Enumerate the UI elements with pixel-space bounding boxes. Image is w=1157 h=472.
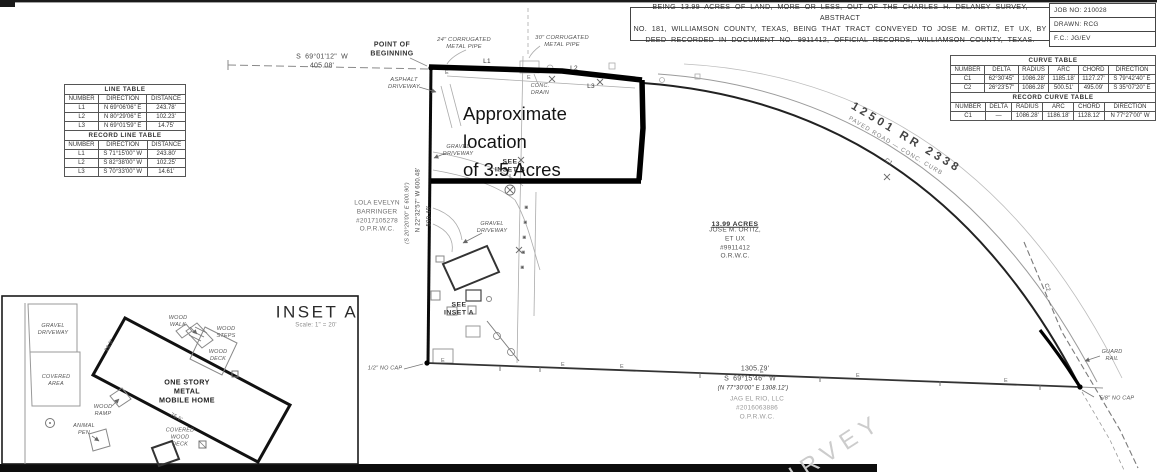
line-l2-label: L2 — [570, 65, 578, 73]
table-cell: N 77°27'00" W — [1105, 112, 1156, 121]
record-curve-table: RECORD CURVE TABLE NUMBERDELTARADIUSARCC… — [950, 92, 1156, 121]
table-header-cell: CHORD — [1079, 66, 1109, 75]
gravel-driveway-label-2: GRAVEL DRIVEWAY — [477, 221, 507, 235]
table-row: C1—1086.28'1186.18'1128.12'N 77°27'00" W — [951, 112, 1156, 121]
table-row: C162°30'45"1086.28'1185.18'1127.27'S 79°… — [951, 75, 1156, 84]
table-header-cell: CHORD — [1074, 103, 1105, 112]
table-header-cell: DISTANCE — [147, 95, 186, 104]
table-header-cell: NUMBER — [951, 66, 985, 75]
guard-rail-label: GUARD RAIL — [1102, 349, 1123, 363]
table-header-cell: DIRECTION — [1108, 66, 1155, 75]
svg-text:E: E — [620, 364, 624, 370]
point-of-beginning-label: POINT OF BEGINNING — [370, 41, 413, 59]
svg-text:E: E — [561, 362, 565, 368]
record-line-table: RECORD LINE TABLE NUMBERDIRECTIONDISTANC… — [64, 130, 186, 177]
pipe-30-label: 30" CORRUGATED METAL PIPE — [535, 35, 589, 49]
curve-tables: CURVE TABLE NUMBERDELTARADIUSARCCHORDDIR… — [950, 55, 1156, 121]
table-cell: 1086.28' — [1012, 112, 1043, 121]
table-header-cell: NUMBER — [65, 141, 99, 150]
table-cell: 1128.12' — [1074, 112, 1105, 121]
west-partial-distance: 590.48' — [426, 206, 434, 227]
table-cell: 102.23' — [147, 113, 186, 122]
record-line-table-title: RECORD LINE TABLE — [65, 131, 186, 141]
line-l1-label: L1 — [483, 58, 491, 66]
table-cell: 243.80' — [147, 150, 185, 159]
table-row: L1N 69°06'06" E243.78' — [65, 104, 186, 113]
adjoiner-west-owner: LOLA EVELYN BARRINGER #2017105278 O.P.R.… — [354, 199, 399, 234]
drawn-by: DRAWN: RCG — [1050, 18, 1155, 32]
conc-drain-label: CONC. DRAIN — [531, 83, 550, 97]
table-header-cell: DIRECTION — [98, 141, 147, 150]
table-cell: S 70°33'00" W — [98, 168, 147, 177]
south-bearing: S 69°15'46" W — [724, 376, 776, 385]
job-info-box: JOB NO: 210028 DRAWN: RCG F.C.: JG/EV — [1049, 3, 1156, 47]
north-record-bearing: S 69°01'12" W — [296, 54, 348, 63]
table-cell: 14.61' — [147, 168, 185, 177]
inset-animal-pen-label: ANIMAL PEN — [73, 423, 95, 437]
south-record-bearing: (N 77°30'00" E 1308.12') — [718, 385, 789, 393]
inset-a-scale: Scale: 1" = 20' — [295, 322, 336, 330]
table-cell: N 69°06'06" E — [99, 104, 147, 113]
table-cell: S 79°42'40" E — [1108, 75, 1155, 84]
inset-mobile-home-label: ONE STORY METAL MOBILE HOME — [159, 378, 215, 405]
curve-table: CURVE TABLE NUMBERDELTARADIUSARCCHORDDIR… — [950, 55, 1156, 93]
curve-table-headers: NUMBERDELTARADIUSARCCHORDDIRECTION — [951, 66, 1156, 75]
inset-wood-ramp-label: WOOD RAMP — [94, 404, 113, 418]
field-crew: F.C.: JG/EV — [1050, 32, 1155, 46]
table-cell: L2 — [65, 113, 99, 122]
svg-text:E: E — [527, 75, 531, 81]
inset-wood-walk-label: WOOD WALK — [169, 315, 188, 329]
table-cell: 1185.18' — [1049, 75, 1079, 84]
line-table-title: LINE TABLE — [65, 85, 186, 95]
survey-plat-page: E E E E E E E E — [0, 0, 1157, 472]
asphalt-driveway-label: ASPHALT DRIVEWAY — [388, 77, 420, 91]
table-cell: 1086.28' — [1018, 75, 1048, 84]
table-header-cell: ARC — [1043, 103, 1074, 112]
north-record-distance: 405.08' — [310, 63, 334, 72]
record-line-table-headers: NUMBERDIRECTIONDISTANCE — [65, 141, 186, 150]
inset-wood-deck-label: WOOD DECK — [209, 349, 228, 363]
table-cell: — — [986, 112, 1012, 121]
table-header-cell: RADIUS — [1018, 66, 1048, 75]
table-cell: S 71°15'00" W — [98, 150, 147, 159]
table-header-cell: NUMBER — [65, 95, 99, 104]
west-record-bearing: (S 20°20'00" E 600.90') — [405, 182, 412, 244]
job-number: JOB NO: 210028 — [1050, 4, 1155, 18]
inset-wood-steps-label: WOOD STEPS — [216, 326, 235, 340]
see-inset-a-label: SEE INSET A — [444, 302, 474, 319]
table-header-cell: ARC — [1049, 66, 1079, 75]
table-cell: 102.25' — [147, 159, 185, 168]
curve-table-title: CURVE TABLE — [951, 56, 1156, 66]
table-row: L2N 80°29'06" E102.23' — [65, 113, 186, 122]
svg-text:E: E — [1004, 378, 1008, 384]
table-row: L1S 71°15'00" W243.80' — [65, 150, 186, 159]
pin-five-eighth-label: 5/8" NO CAP — [1100, 396, 1134, 403]
table-row: L2S 82°38'00" W102.25' — [65, 159, 186, 168]
legal-description: BEING 13.99 ACRES OF LAND, MORE OR LESS,… — [631, 2, 1049, 45]
table-header-cell: DIRECTION — [99, 95, 147, 104]
table-cell: 1127.27' — [1079, 75, 1109, 84]
line-table-headers: NUMBERDIRECTIONDISTANCE — [65, 95, 186, 104]
tract-owner: JOSE M. ORTIZ, ET UX #9911412 O.R.W.C. — [709, 226, 761, 261]
inset-a-title: INSET A — [276, 301, 358, 322]
west-measured-bearing: N 22°32'57" W 600.48' — [415, 168, 423, 232]
adjoiner-south-owner: JAG EL RIO, LLC #2016063886 O.P.R.W.C. — [730, 394, 784, 421]
svg-text:E: E — [445, 70, 449, 76]
svg-text:E: E — [441, 358, 445, 364]
table-cell: 62°30'45" — [985, 75, 1019, 84]
table-cell: 1186.18' — [1043, 112, 1074, 121]
table-row: L3S 70°33'00" W14.61' — [65, 168, 186, 177]
line-table: LINE TABLE NUMBERDIRECTIONDISTANCE L1N 6… — [64, 84, 186, 131]
table-header-cell: DIRECTION — [1105, 103, 1156, 112]
approximate-acreage-note: Approximate location of 3.5 Acres — [463, 100, 633, 183]
line-tables: LINE TABLE NUMBERDIRECTIONDISTANCE L1N 6… — [64, 84, 186, 177]
south-distance: 1305.79' — [741, 366, 769, 375]
table-header-cell: DELTA — [986, 103, 1012, 112]
record-curve-table-title: RECORD CURVE TABLE — [951, 93, 1156, 103]
table-cell: C1 — [951, 75, 985, 84]
table-cell: L1 — [65, 104, 99, 113]
record-curve-table-headers: NUMBERDELTARADIUSARCCHORDDIRECTION — [951, 103, 1156, 112]
table-header-cell: NUMBER — [951, 103, 986, 112]
table-cell: S 82°38'00" W — [98, 159, 147, 168]
table-cell: L3 — [65, 168, 99, 177]
pipe-24-label: 24" CORRUGATED METAL PIPE — [437, 37, 491, 51]
table-header-cell: DISTANCE — [147, 141, 185, 150]
inset-gravel-driveway-label: GRAVEL DRIVEWAY — [38, 323, 68, 337]
table-header-cell: RADIUS — [1012, 103, 1043, 112]
pin-half-inch-label: 1/2" NO CAP — [368, 366, 402, 373]
table-cell: L1 — [65, 150, 99, 159]
line-l3-label: L3 — [587, 83, 595, 91]
table-cell: L2 — [65, 159, 99, 168]
table-cell: 243.78' — [147, 104, 186, 113]
table-header-cell: DELTA — [985, 66, 1019, 75]
inset-covered-area-label: COVERED AREA — [42, 374, 71, 388]
legal-description-box: BEING 13.99 ACRES OF LAND, MORE OR LESS,… — [630, 7, 1050, 41]
table-cell: N 80°29'06" E — [99, 113, 147, 122]
table-cell: C1 — [951, 112, 986, 121]
inset-covered-wood-deck-label: COVERED WOOD DECK — [166, 428, 195, 449]
svg-text:E: E — [856, 373, 860, 379]
